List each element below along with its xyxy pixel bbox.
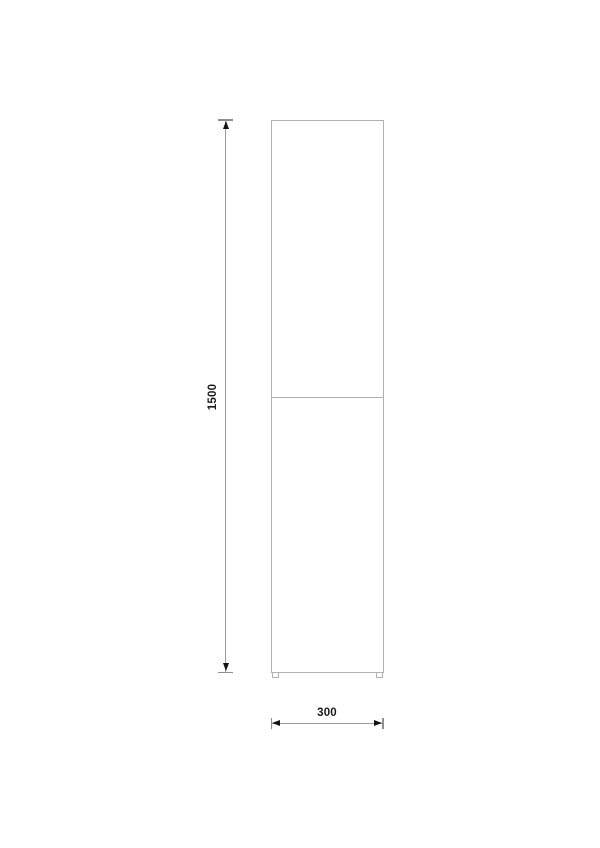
width-dimension-arrow-right (374, 720, 382, 726)
width-dimension-line (271, 723, 383, 724)
height-dimension-tick-bottom (218, 672, 233, 674)
width-dimension-label: 300 (317, 707, 337, 719)
height-dimension-label: 1500 (207, 384, 219, 410)
cabinet-foot-right (376, 673, 383, 678)
height-dimension-arrow-bottom (223, 663, 229, 671)
height-dimension-arrow-top (223, 121, 229, 129)
cabinet-door-divider-line (271, 397, 384, 399)
width-dimension-arrow-left (272, 720, 280, 726)
technical-drawing-canvas: 1500 300 (0, 0, 600, 848)
width-dimension-tick-right (382, 718, 384, 729)
cabinet-foot-left (272, 673, 279, 678)
height-dimension-line (225, 120, 226, 672)
